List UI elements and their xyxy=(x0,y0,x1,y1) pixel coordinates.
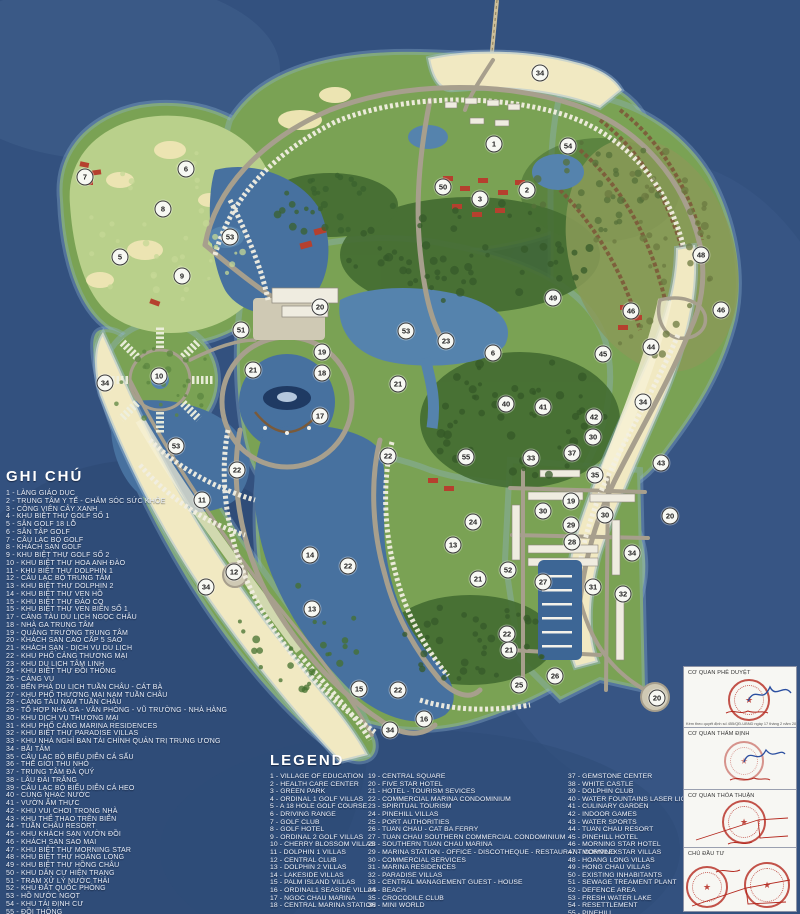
legend-en-item: 31 - MARINA RESIDENCES xyxy=(368,864,568,872)
legend-en-item: 39 - DOLPHIN CLUB xyxy=(568,788,686,796)
legend-vi-item: 42 - KHU VUI CHƠI TRONG NHÀ xyxy=(6,808,268,816)
legend-vi-item: 30 - KHU DỊCH VỤ THƯƠNG MẠI xyxy=(6,715,268,723)
legend-vi-item: 14 - KHU BIỆT THỰ VEN HỒ xyxy=(6,591,268,599)
legend-en-item: 42 - INDOOR GAMES xyxy=(568,811,686,819)
legend-en-item: 10 - CHERRY BLOSSOM VILLAS xyxy=(270,841,368,849)
legend-vi-item: 45 - KHU KHÁCH SẠN VƯỜN ĐỒI xyxy=(6,831,268,839)
legend-en-item: 29 - MARINA STATION - OFFICE - DISCOTHEQ… xyxy=(368,849,568,857)
legend-en-item: 49 - HONG CHAU VILLAS xyxy=(568,864,686,872)
signature-name xyxy=(728,774,772,784)
legend-en-item: 19 - CENTRAL SQUARE xyxy=(368,773,568,781)
legend-en-item: 17 - NGOC CHAU MARINA xyxy=(270,895,368,903)
legend-en-item: 12 - CENTRAL CLUB xyxy=(270,857,368,865)
legend-vi-item: 32 - KHU BIỆT THỰ PARADISE VILLAS xyxy=(6,730,268,738)
legend-vi-item: 40 - CUNG NHẠC NƯỚC xyxy=(6,792,268,800)
legend-en-item: 34 - BEACH xyxy=(368,887,568,895)
legend-en-col-2: 19 - CENTRAL SQUARE20 - FIVE STAR HOTEL2… xyxy=(368,773,568,914)
legend-en: LEGEND 1 - VILLAGE OF EDUCATION2 - HEALT… xyxy=(270,752,686,914)
approval-box-thoa-thuan: CƠ QUAN THỎA THUẬN ★ xyxy=(684,790,796,848)
legend-en-item: 52 - DEFENCE AREA xyxy=(568,887,686,895)
legend-en-item: 51 - SEWAGE TREAMENT PLANT xyxy=(568,879,686,887)
legend-vi-item: 37 - TRUNG TÂM ĐÁ QUÝ xyxy=(6,769,268,777)
legend-en-item: 54 - RESETTLEMENT xyxy=(568,902,686,910)
legend-en-item: 30 - COMMERCIAL SERVICES xyxy=(368,857,568,865)
legend-en-item: 33 - CENTRAL MANAGEMENT GUEST - HOUSE xyxy=(368,879,568,887)
legend-en-item: 46 - MORNING STAR HOTEL xyxy=(568,841,686,849)
legend-vi: GHI CHÚ 1 - LÀNG GIÁO DỤC2 - TRUNG TÂM Y… xyxy=(6,468,268,914)
legend-vi-item: 21 - KHÁCH SẠN - DỊCH VỤ DU LỊCH xyxy=(6,645,268,653)
legend-vi-item: 36 - THẾ GIỚI THU NHỎ xyxy=(6,761,268,769)
legend-en-item: 11 - DOLPHIN 1 VILLAS xyxy=(270,849,368,857)
legend-en-item: 21 - HOTEL - TOURISM SEVICES xyxy=(368,788,568,796)
legend-en-item: 13 - DOLPHIN 2 VILLAS xyxy=(270,864,368,872)
legend-vi-item: 18 - NHÀ GA TRUNG TÂM xyxy=(6,622,268,630)
legend-en-item: 53 - FRESH WATER LAKE xyxy=(568,895,686,903)
legend-vi-item: 46 - KHÁCH SẠN SAO MAI xyxy=(6,839,268,847)
legend-vi-item: 41 - VƯỜN ẨM THỰC xyxy=(6,800,268,808)
legend-vi-item: 25 - CẢNG VỤ xyxy=(6,676,268,684)
legend-vi-item: 13 - KHU BIỆT THỰ DOLPHIN 2 xyxy=(6,583,268,591)
legend-en-item: 26 - TUAN CHAU - CAT BA FERRY xyxy=(368,826,568,834)
signature xyxy=(688,798,794,846)
legend-vi-item: 20 - KHÁCH SẠN CAO CẤP 5 SAO xyxy=(6,637,268,645)
legend-vi-item: 24 - KHU BIỆT THỰ ĐỒI THÔNG xyxy=(6,668,268,676)
signature xyxy=(740,742,788,770)
legend-en-item: 15 - PALM ISLAND VILLAS xyxy=(270,879,368,887)
legend-en-item: 3 - GREEN PARK xyxy=(270,788,368,796)
legend-vi-item: 22 - KHU PHỐ CẢNG THƯƠNG MẠI xyxy=(6,653,268,661)
legend-vi-item: 9 - KHU BIỆT THỰ GOLF SỐ 2 xyxy=(6,552,268,560)
approval-panel: CƠ QUAN PHÊ DUYỆT ★ Kèm theo quyết định … xyxy=(683,666,797,912)
legend-en-item: 24 - PINEHILL VILLAS xyxy=(368,811,568,819)
legend-vi-item: 5 - SÂN GOLF 18 LỖ xyxy=(6,521,268,529)
legend-vi-item: 15 - KHU BIỆT THỰ VEN BIỂN SỐ 1 xyxy=(6,606,268,614)
legend-en-col-1: 1 - VILLAGE OF EDUCATION2 - HEALTH CARE … xyxy=(270,773,368,914)
legend-en-item: 41 - CULINARY GARDEN xyxy=(568,803,686,811)
legend-vi-title: GHI CHÚ xyxy=(6,468,268,485)
legend-en-col-3: 37 - GEMSTONE CENTER38 - WHITE CASTLE39 … xyxy=(568,773,686,914)
legend-en-item: 55 - PINEHILL xyxy=(568,910,686,914)
legend-en-item: 8 - GOLF HOTEL xyxy=(270,826,368,834)
legend-en-item: 23 - SPIRITUAL TOURISM xyxy=(368,803,568,811)
legend-en-item: 6 - DRIVING RANGE xyxy=(270,811,368,819)
approval-label: CƠ QUAN PHÊ DUYỆT xyxy=(684,667,796,676)
legend-vi-item: 38 - LÂU ĐÀI TRẮNG xyxy=(6,777,268,785)
legend-vi-item: 44 - TUẦN CHÂU RESORT xyxy=(6,823,268,831)
approval-label: CHỦ ĐẦU TƯ xyxy=(684,848,796,857)
legend-en-item: 28 - SOUTHERN TUAN CHAU MARINA xyxy=(368,841,568,849)
legend-vi-item: 48 - KHU BIỆT THỰ HOÀNG LONG xyxy=(6,854,268,862)
legend-vi-item: 2 - TRUNG TÂM Y TẾ - CHĂM SÓC SỨC KHỎE xyxy=(6,498,268,506)
legend-vi-item: 50 - KHU DÂN CƯ HIỆN TRẠNG xyxy=(6,870,268,878)
approval-box-tham-dinh: CƠ QUAN THẨM ĐỊNH ★ xyxy=(684,728,796,790)
legend-vi-item: 6 - SÂN TẬP GOLF xyxy=(6,529,268,537)
legend-en-item: 47 - MORNING STAR VILLAS xyxy=(568,849,686,857)
legend-vi-item: 8 - KHÁCH SẠN GOLF xyxy=(6,544,268,552)
approval-box-chu-dau-tu: CHỦ ĐẦU TƯ ★ ★ xyxy=(684,848,796,911)
legend-vi-item: 34 - BÃI TẮM xyxy=(6,746,268,754)
legend-en-item: 37 - GEMSTONE CENTER xyxy=(568,773,686,781)
legend-vi-item: 29 - TỔ HỢP NHÀ GA - VĂN PHÒNG - VŨ TRƯỜ… xyxy=(6,707,268,715)
legend-en-item: 16 - ORDINAL1 SEASIDE VILLAS xyxy=(270,887,368,895)
legend-vi-item: 33 - KHU NHÀ NGHỈ BAN TÀI CHÍNH QUẢN TRỊ… xyxy=(6,738,268,746)
legend-vi-item: 53 - HỒ NƯỚC NGỌT xyxy=(6,893,268,901)
signature xyxy=(744,679,794,709)
legend-en-item: 18 - CENTRAL MARINA STATION xyxy=(270,902,368,910)
legend-en-item: 48 - HOANG LONG VILLAS xyxy=(568,857,686,865)
legend-vi-item: 26 - BẾN PHÀ DU LỊCH TUẦN CHÂU - CÁT BÀ xyxy=(6,684,268,692)
legend-vi-item: 52 - KHU ĐẤT QUỐC PHÒNG xyxy=(6,885,268,893)
legend-en-title: LEGEND xyxy=(270,752,686,769)
masterplan-canvas: 3415450237685539514846464944453442304320… xyxy=(0,0,800,914)
legend-vi-item: 54 - KHU TÁI ĐỊNH CƯ xyxy=(6,901,268,909)
legend-vi-item: 55 - ĐỒI THÔNG xyxy=(6,909,268,914)
legend-en-item: 36 - MINI WORLD xyxy=(368,902,568,910)
legend-vi-item: 12 - CÂU LẠC BỘ TRUNG TÂM xyxy=(6,575,268,583)
signature-name xyxy=(724,707,770,717)
legend-vi-item: 10 - KHU BIỆT THỰ HOA ANH ĐÀO xyxy=(6,560,268,568)
legend-vi-item: 4 - KHU BIỆT THỰ GOLF SỐ 1 xyxy=(6,513,268,521)
legend-vi-item: 1 - LÀNG GIÁO DỤC xyxy=(6,490,268,498)
legend-en-item: 44 - TUAN CHAU RESORT xyxy=(568,826,686,834)
approval-box-phe-duyet: CƠ QUAN PHÊ DUYỆT ★ Kèm theo quyết định … xyxy=(684,667,796,728)
signature xyxy=(686,858,796,910)
legend-en-item: 1 - VILLAGE OF EDUCATION xyxy=(270,773,368,781)
legend-vi-item: 17 - CẢNG TÀU DU LỊCH NGỌC CHÂU xyxy=(6,614,268,622)
legend-en-item: 5 - A 18 HOLE GOLF COURSE xyxy=(270,803,368,811)
legend-vi-items: 1 - LÀNG GIÁO DỤC2 - TRUNG TÂM Y TẾ - CH… xyxy=(6,490,268,914)
approval-label: CƠ QUAN THẨM ĐỊNH xyxy=(684,728,796,737)
legend-en-item: 35 - CROCODILE CLUB xyxy=(368,895,568,903)
legend-vi-item: 28 - CẢNG TÀU NAM TUẦN CHÂU xyxy=(6,699,268,707)
legend-vi-item: 49 - KHU BIỆT THỰ HỒNG CHÂU xyxy=(6,862,268,870)
approval-note: Kèm theo quyết định số 455/QĐ-UBND ngày … xyxy=(686,722,779,726)
